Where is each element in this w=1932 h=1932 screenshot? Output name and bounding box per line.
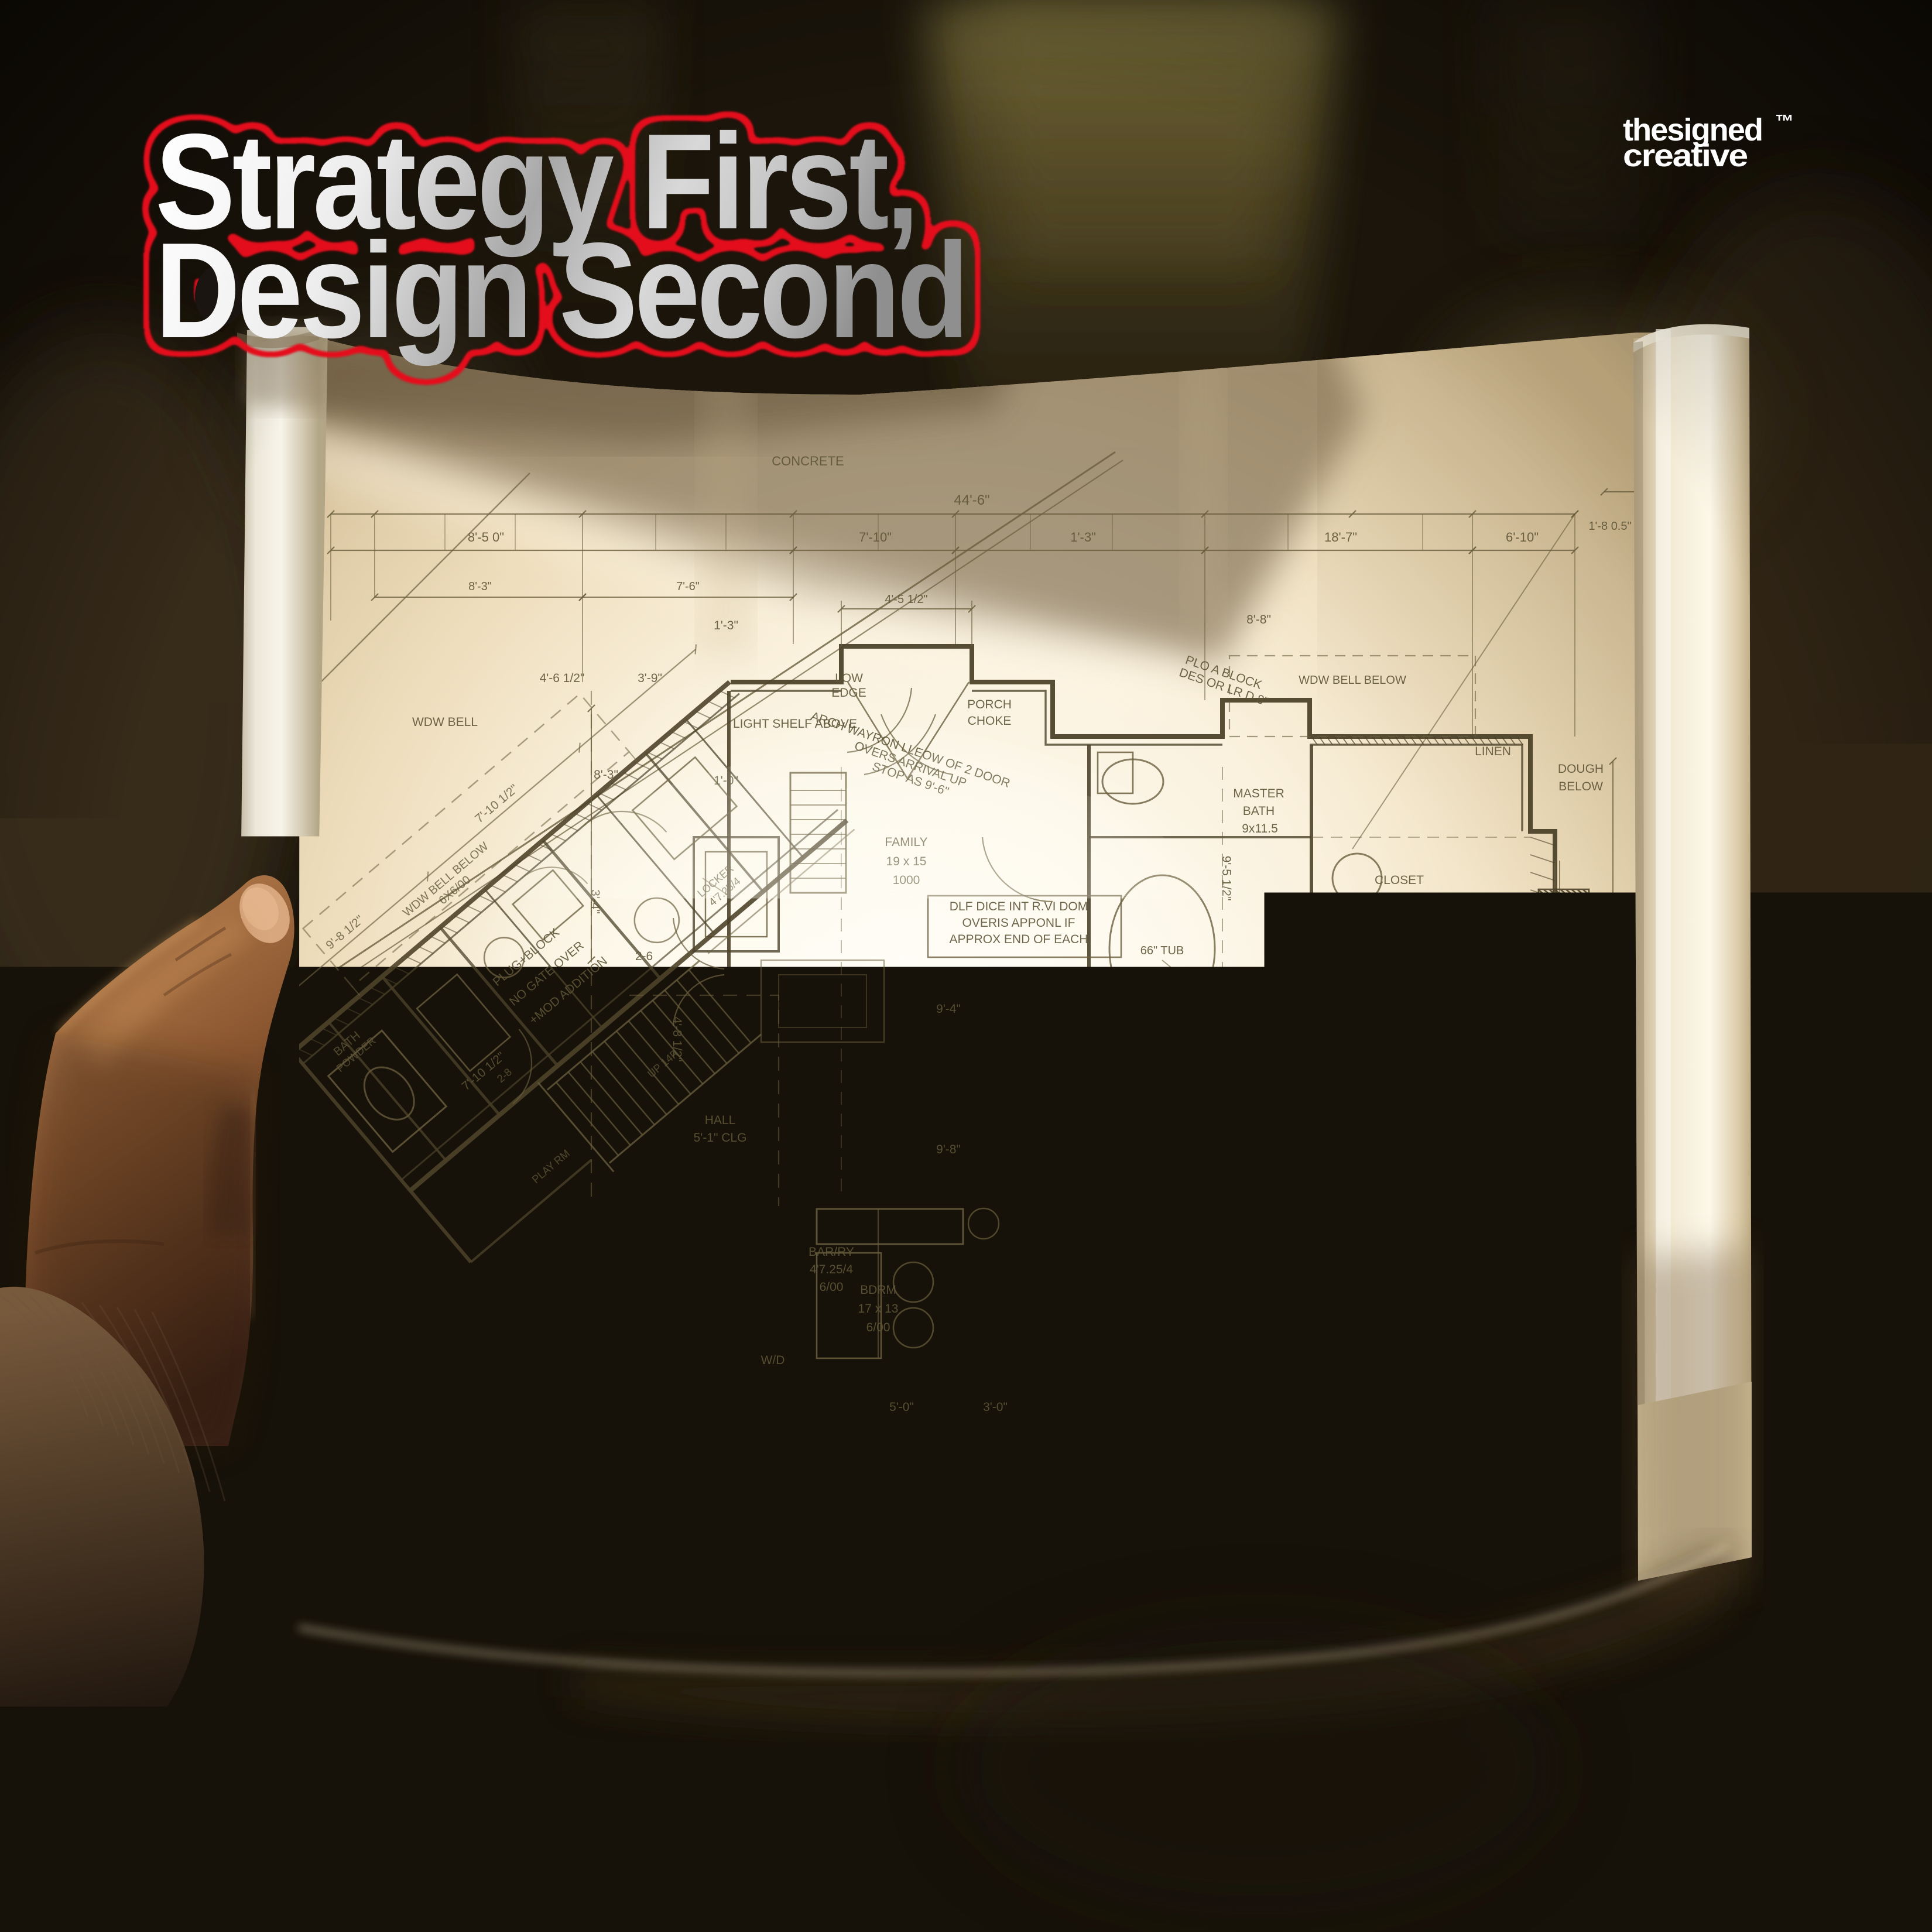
svg-text:creative: creative — [1623, 138, 1748, 173]
svg-text:needs a reason. Blueprint: needs a reason. Blueprint — [129, 1269, 489, 1304]
svg-text:Define the "why": Define the "why" — [126, 1768, 327, 1801]
svg-text:Brand strategy = business clar: Brand strategy = business clarity — [524, 1783, 936, 1817]
svg-text:Process prevents: Process prevents — [1543, 1768, 1751, 1801]
svg-text:positioning, audience,: positioning, audience, — [129, 1427, 434, 1462]
svg-text:values, and messaging.: values, and messaging. — [129, 1479, 461, 1515]
svg-text:before the "what": before the "what" — [126, 1802, 330, 1835]
svg-text:from strategic goals: from strategic goals — [1101, 1802, 1354, 1835]
svg-text:Every visual decision: Every visual decision — [129, 1216, 424, 1251]
svg-text:your brand before: your brand before — [129, 1321, 378, 1356]
svg-text:you build it—clarify: you build it—clarify — [129, 1374, 394, 1409]
svg-text:Visual decisions stem: Visual decisions stem — [1101, 1768, 1369, 1801]
svg-text:Design Second: Design Second — [155, 215, 966, 366]
svg-text:is decoration. Strategy: is decoration. Strategy — [129, 1585, 443, 1620]
svg-text:Design without strategy: Design without strategy — [129, 1532, 457, 1567]
svg-text:without design is invisible.: without design is invisible. — [128, 1638, 492, 1673]
svg-text:expensive redesigns: expensive redesigns — [1543, 1802, 1804, 1835]
svg-text:™: ™ — [1775, 111, 1794, 132]
